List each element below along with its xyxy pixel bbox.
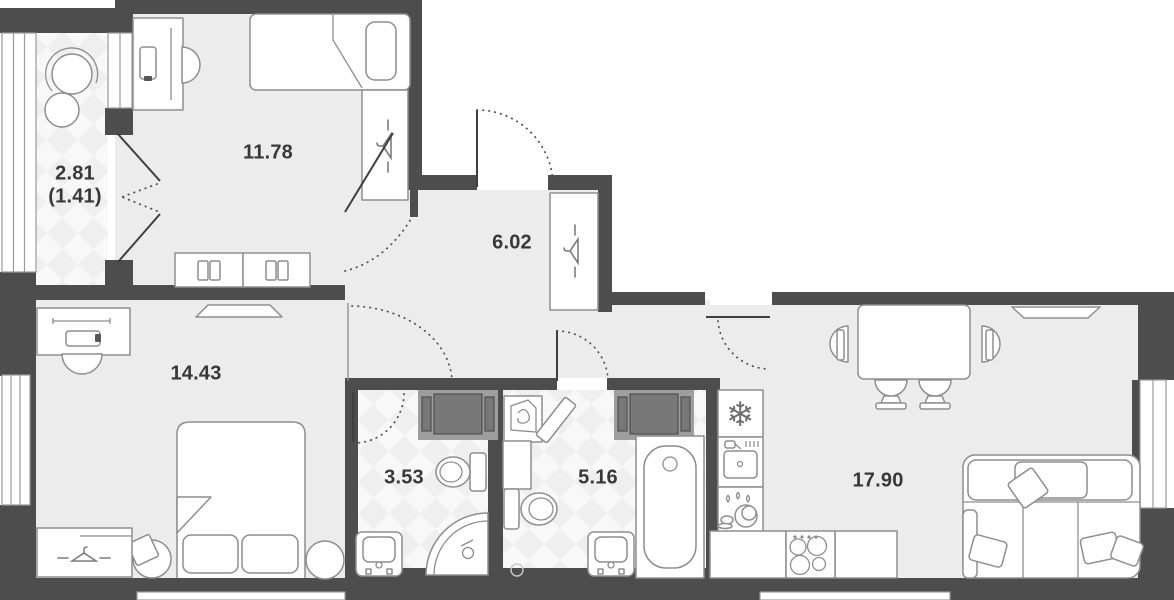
floor-plan: ❄ xyxy=(0,0,1174,600)
fridge: ❄ xyxy=(718,390,763,437)
area-label-loggia-reduced: (1.41) xyxy=(48,186,101,209)
sink xyxy=(356,532,402,576)
washing-machine xyxy=(418,390,498,440)
floor-plan-drawing: ❄ xyxy=(0,0,1174,600)
area-label-master-bedroom: 14.43 xyxy=(170,363,221,386)
pillow-icon xyxy=(183,535,238,573)
sink xyxy=(588,532,634,576)
area-label-bathroom: 5.16 xyxy=(578,467,618,490)
bathtub xyxy=(636,436,704,578)
bed-single xyxy=(250,14,410,90)
area-label-hallway: 6.02 xyxy=(492,232,532,255)
wardrobe-hallway xyxy=(550,193,598,310)
pillow-icon xyxy=(242,535,298,573)
tv-living xyxy=(1012,307,1100,318)
washing-machine xyxy=(614,390,694,440)
area-label-kitchen-living: 17.90 xyxy=(852,470,903,493)
bed-double xyxy=(177,422,305,578)
kitchen-sink xyxy=(718,437,763,487)
snowflake-icon: ❄ xyxy=(726,395,755,435)
stove xyxy=(786,531,835,578)
loggia-glazing xyxy=(2,33,36,272)
bedroom-bottom-window xyxy=(137,592,345,600)
area-label-shower-room: 3.53 xyxy=(384,467,424,490)
living-bottom-window xyxy=(760,592,950,600)
toilet xyxy=(436,453,486,491)
area-label-loggia: 2.81 xyxy=(55,163,95,186)
bookshelves xyxy=(175,253,310,287)
wardrobe-master-bedroom xyxy=(37,528,132,577)
bedroom-window xyxy=(2,375,30,505)
sofa xyxy=(963,455,1144,578)
toilet xyxy=(504,489,557,529)
entrance-door xyxy=(477,110,553,187)
tv-master-bedroom xyxy=(196,305,282,317)
area-label-small-bedroom: 11.78 xyxy=(243,142,293,165)
dishwasher xyxy=(718,487,763,533)
